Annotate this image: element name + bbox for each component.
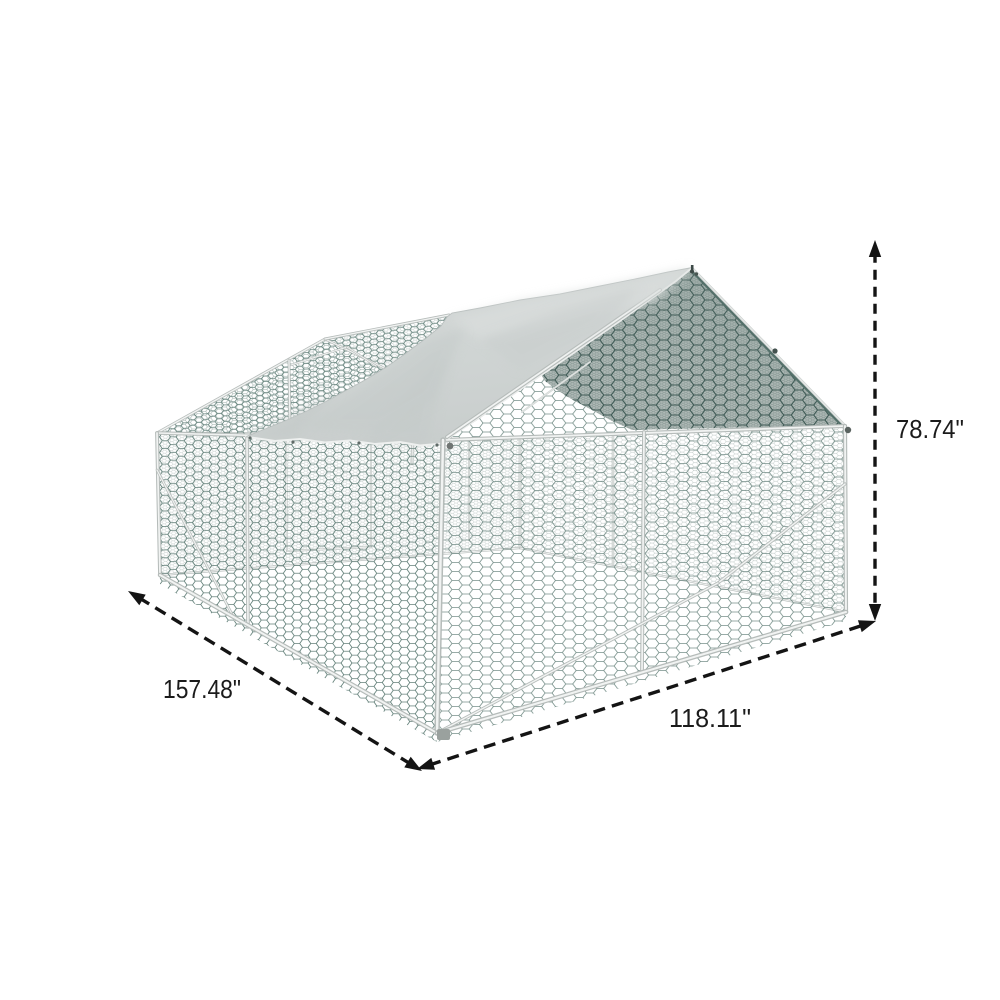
svg-text:157.48": 157.48"	[163, 676, 241, 704]
svg-text:78.74": 78.74"	[896, 416, 964, 444]
svg-text:118.11": 118.11"	[669, 705, 751, 733]
